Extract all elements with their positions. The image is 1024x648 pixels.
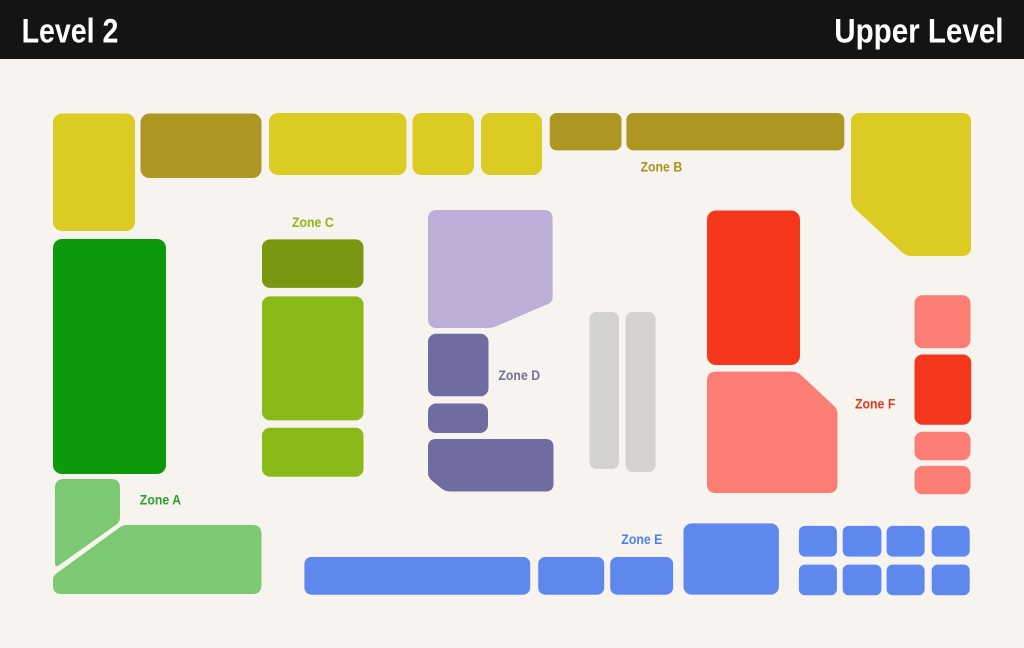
svg-text:Level 2: Level 2 xyxy=(22,12,119,50)
svg-text:Zone B: Zone B xyxy=(641,159,683,175)
svg-text:Zone F: Zone F xyxy=(855,396,895,412)
svg-text:Zone C: Zone C xyxy=(292,214,334,230)
svg-text:Zone D: Zone D xyxy=(498,367,540,383)
svg-text:Zone A: Zone A xyxy=(140,492,182,508)
svg-text:Zone E: Zone E xyxy=(621,531,662,547)
svg-text:Upper Level: Upper Level xyxy=(834,11,1003,49)
